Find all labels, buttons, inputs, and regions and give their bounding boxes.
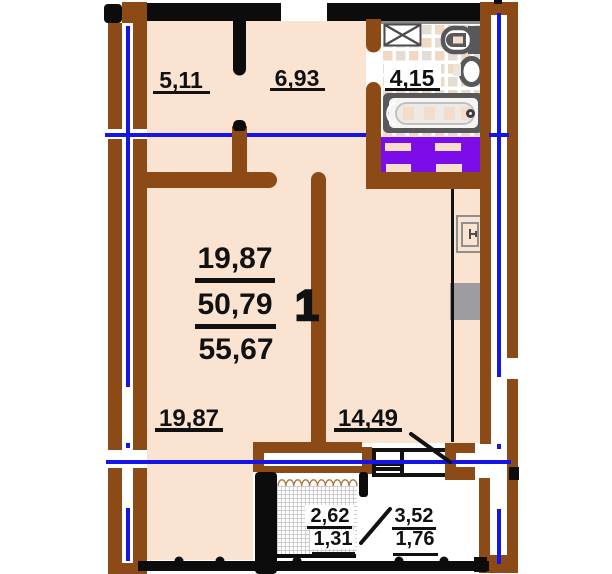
svg-text:50,79: 50,79 (197, 288, 272, 321)
svg-text:1: 1 (295, 282, 319, 330)
svg-text:6,93: 6,93 (275, 65, 320, 91)
svg-text:2,62: 2,62 (311, 505, 350, 527)
svg-text:4,15: 4,15 (390, 65, 435, 91)
svg-text:19,87: 19,87 (197, 242, 272, 275)
svg-text:1,31: 1,31 (314, 528, 353, 550)
svg-text:55,67: 55,67 (198, 333, 273, 366)
svg-text:3,52: 3,52 (395, 505, 434, 527)
svg-text:5,11: 5,11 (159, 67, 203, 93)
svg-text:14,49: 14,49 (338, 405, 398, 432)
svg-text:1,76: 1,76 (396, 528, 435, 550)
svg-text:19,87: 19,87 (159, 405, 219, 432)
